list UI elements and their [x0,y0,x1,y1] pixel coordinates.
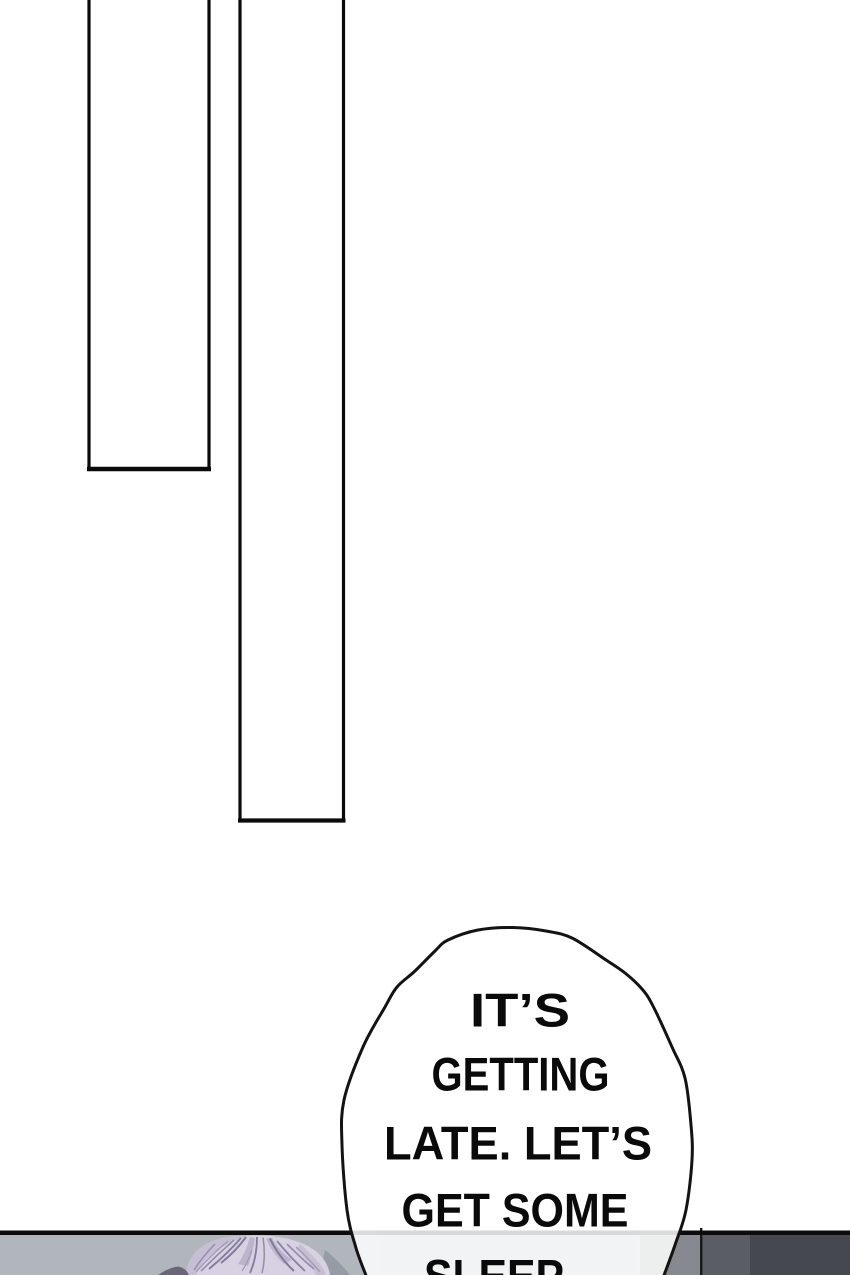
svg-text:SLEEP: SLEEP [424,1249,564,1275]
svg-text:GETTING: GETTING [432,1047,610,1100]
svg-text:LATE. LET’S: LATE. LET’S [384,1116,652,1169]
svg-text:GET SOME: GET SOME [402,1183,629,1236]
svg-text:IT’S: IT’S [470,983,570,1036]
